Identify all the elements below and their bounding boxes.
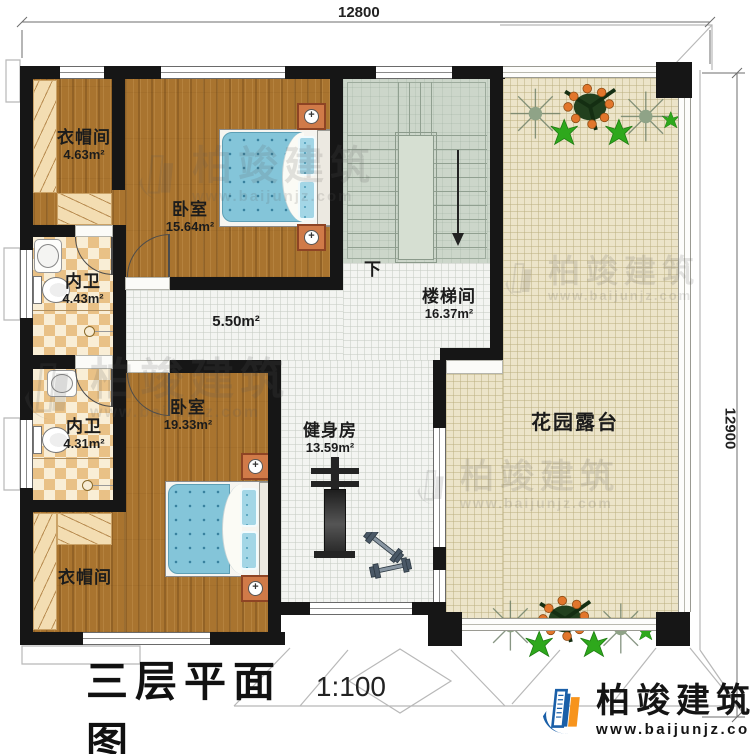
- drain-pipe-line: [93, 485, 113, 486]
- shower-partition-line: [33, 310, 113, 311]
- nightstand-icon: +: [297, 224, 326, 251]
- stair-landing: [398, 135, 434, 260]
- dimension-right: 12900: [722, 399, 739, 459]
- door-leaf: [111, 237, 113, 275]
- terrace-parapet: [503, 66, 656, 78]
- door-opening: [125, 277, 170, 290]
- nightstand-icon: +: [241, 453, 270, 480]
- window: [376, 66, 452, 79]
- stair-direction-line: [457, 150, 459, 235]
- room-label-bedroom-1: 卧室15.64m²: [150, 200, 230, 234]
- company-logo: 柏竣建筑 www.baijunjz.com: [536, 684, 750, 738]
- wall: [330, 66, 343, 290]
- room-label-gym: 健身房13.59m²: [290, 421, 370, 455]
- nightstand-icon: +: [241, 575, 270, 602]
- page-title: 三层平面图: [86, 648, 302, 754]
- window: [20, 420, 33, 488]
- room-label-terrace: 花园露台: [520, 412, 630, 435]
- room-label-bath-1: 内卫4.43m²: [45, 272, 121, 306]
- room-label-wardrobe-bottom: 衣帽间: [46, 568, 124, 588]
- window: [433, 570, 446, 602]
- wall: [268, 360, 281, 632]
- shower-partition-line: [33, 458, 113, 459]
- door-opening: [75, 225, 113, 237]
- door-opening: [446, 360, 503, 374]
- stair-flight-left: [347, 135, 398, 259]
- toilet-tank-icon: [33, 276, 42, 304]
- bed-icon: [219, 129, 332, 227]
- room-label-hall-area: 5.50m²: [200, 313, 272, 330]
- window: [310, 602, 412, 615]
- drain-pipe-line: [95, 331, 113, 332]
- wall: [20, 632, 83, 645]
- closet-rack-icon: [57, 193, 112, 225]
- column: [656, 612, 690, 646]
- title-block: 三层平面图 1:100 本层建筑面积：97.64m² 层高：3.3m: [86, 648, 386, 754]
- closet-rack-icon: [57, 513, 112, 545]
- terrace-parapet: [678, 98, 691, 612]
- dimension-top: 12800: [338, 4, 380, 21]
- stair-down-label: 下: [360, 260, 386, 280]
- window: [20, 250, 33, 318]
- wall: [20, 500, 126, 512]
- wall: [440, 348, 503, 360]
- weight-bench-icon: [331, 457, 339, 490]
- company-name: 柏竣建筑: [596, 684, 750, 718]
- window: [83, 632, 210, 645]
- column: [428, 612, 462, 646]
- down-arrow-icon: [452, 233, 464, 246]
- wall: [271, 602, 310, 615]
- floor-drain-icon: [82, 480, 93, 491]
- terrace-parapet: [462, 618, 656, 631]
- wall: [433, 360, 446, 428]
- terrace-floor: [503, 78, 678, 618]
- dumbbells-icon: [362, 532, 412, 580]
- column: [656, 62, 692, 98]
- door-opening: [127, 360, 170, 373]
- company-logo-icon: [536, 684, 588, 738]
- scale-label: 1:100: [316, 671, 386, 703]
- door-leaf: [168, 234, 170, 277]
- bed-icon: [165, 481, 272, 577]
- window: [60, 66, 104, 79]
- floor-drain-icon: [84, 326, 95, 337]
- wall: [170, 277, 343, 290]
- wall: [210, 632, 285, 645]
- stair-flight-top: [398, 82, 432, 135]
- window: [161, 66, 285, 79]
- toilet-tank-icon: [33, 426, 42, 454]
- door-opening: [75, 355, 113, 369]
- room-label-stairwell: 楼梯间16.37m²: [406, 287, 492, 321]
- room-label-bath-2: 内卫4.31m²: [46, 417, 122, 451]
- company-url: www.baijunjz.com: [596, 721, 750, 738]
- room-label-bedroom-2: 卧室19.33m²: [148, 398, 228, 432]
- nightstand-icon: +: [297, 103, 326, 130]
- weight-bench-icon: [324, 489, 346, 553]
- wall: [170, 360, 281, 373]
- sink-basin-icon: [37, 244, 59, 268]
- sink-basin-icon: [51, 374, 73, 393]
- weight-bench-icon: [314, 551, 355, 558]
- door-leaf: [111, 369, 113, 407]
- wall: [20, 225, 75, 237]
- sliding-glass-door: [433, 428, 446, 547]
- terrace-floor-lower: [446, 374, 503, 618]
- floor-plan: 12800 12900 + +: [0, 0, 750, 754]
- wall: [113, 360, 127, 373]
- wall: [433, 547, 446, 570]
- room-label-wardrobe-top: 衣帽间4.63m²: [46, 128, 122, 162]
